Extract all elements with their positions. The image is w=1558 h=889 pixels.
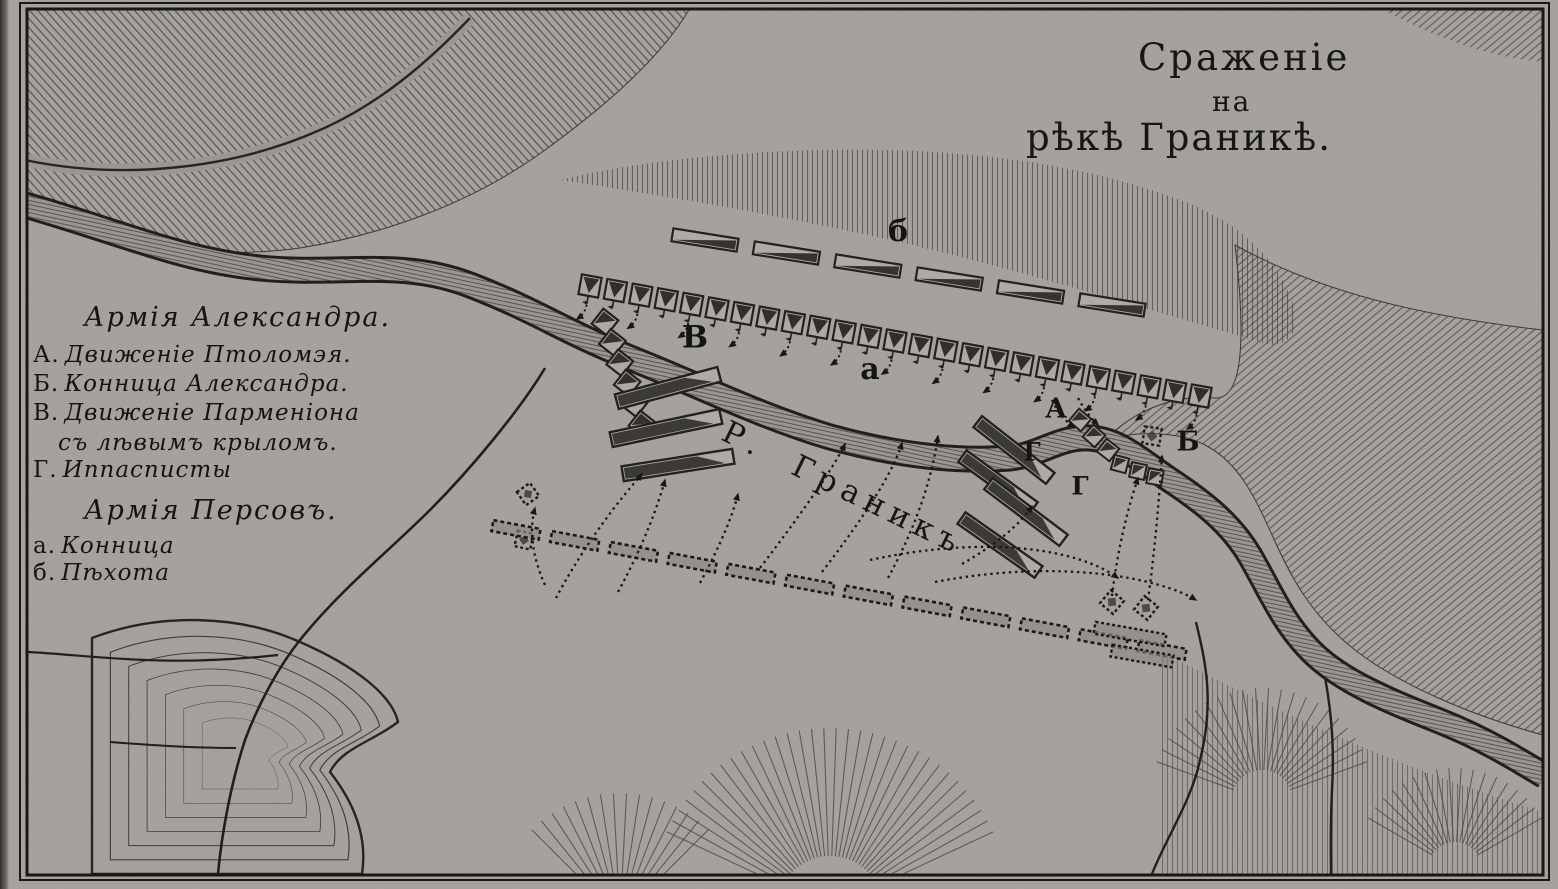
scan-edge-shadow [0, 0, 9, 889]
paper-grain [0, 0, 1558, 889]
battle-map-svg [0, 0, 1558, 889]
scanned-battle-map: Сраженіе на рѣкѣ Граникѣ. Армія Александ… [0, 0, 1558, 889]
